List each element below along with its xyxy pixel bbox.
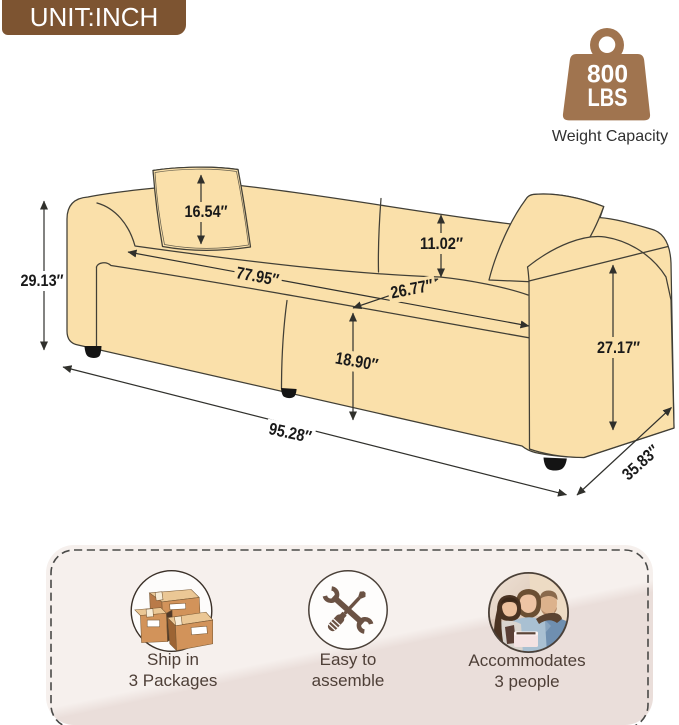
svg-text:29.13″: 29.13″ xyxy=(21,271,64,290)
svg-text:95.28″: 95.28″ xyxy=(267,419,313,447)
svg-text:27.17″: 27.17″ xyxy=(597,338,640,357)
svg-text:16.54″: 16.54″ xyxy=(185,202,228,221)
svg-text:11.02″: 11.02″ xyxy=(420,234,463,253)
